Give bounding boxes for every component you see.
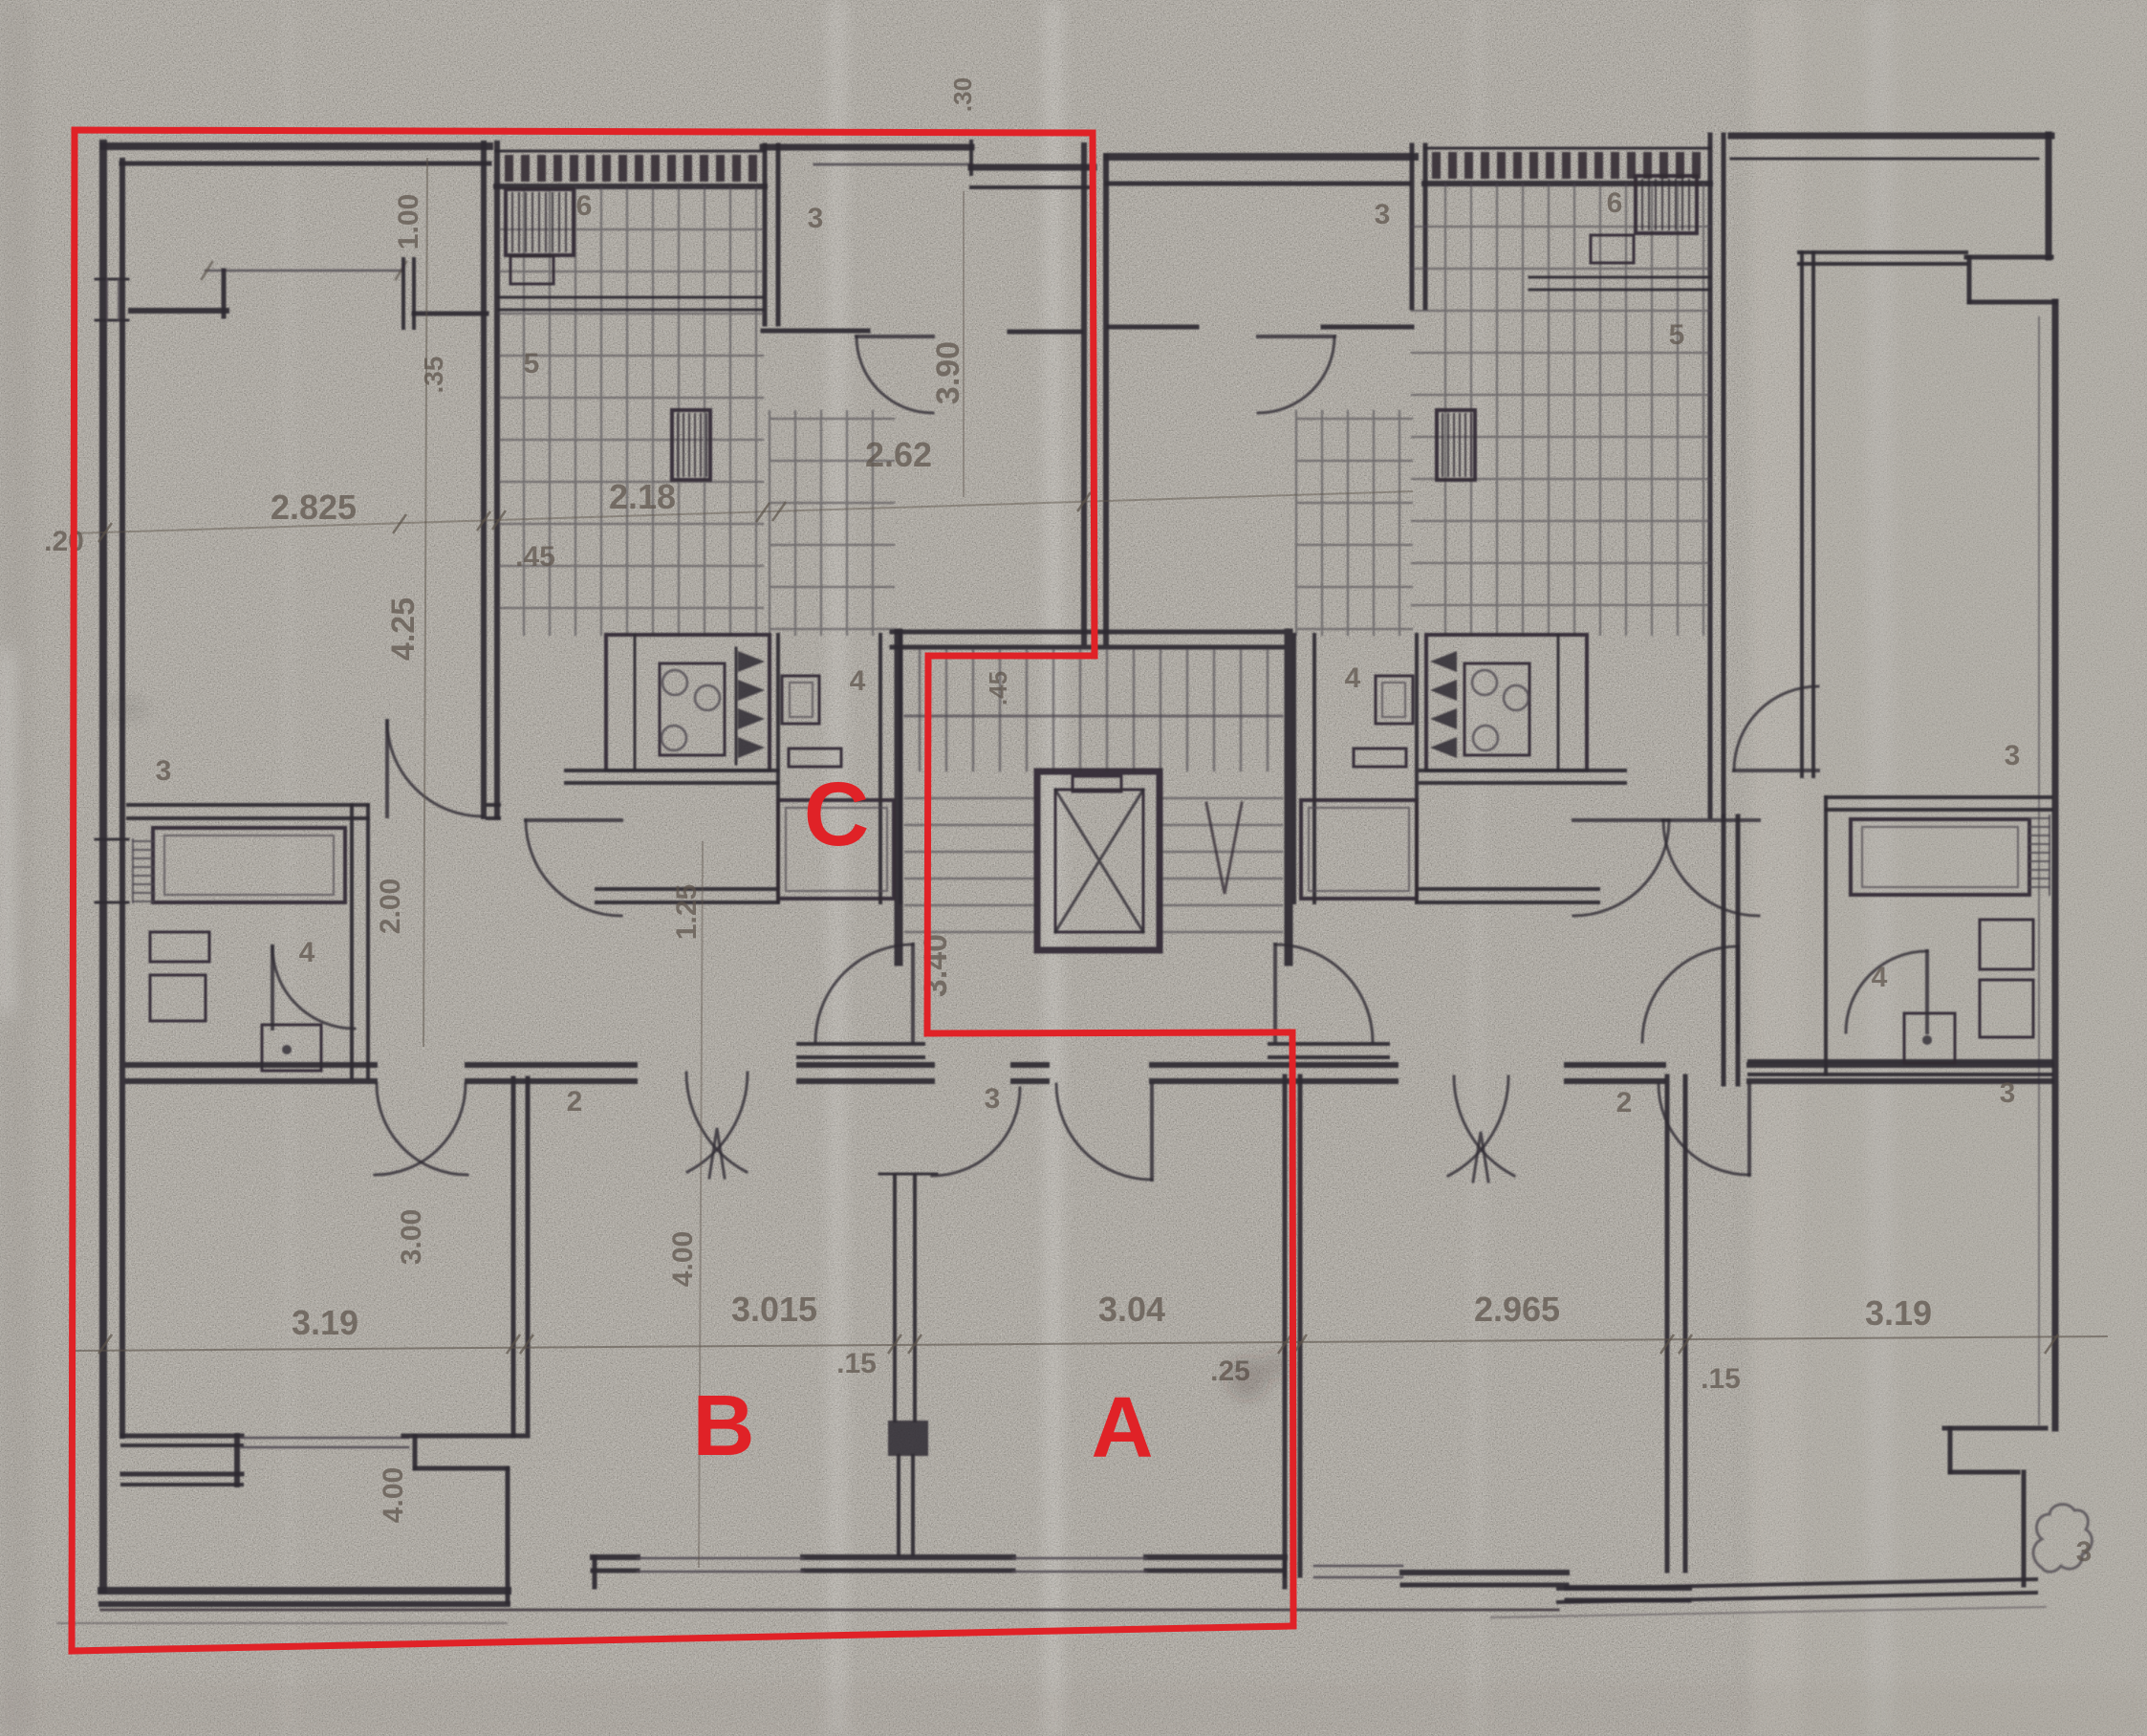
svg-text:2.18: 2.18 bbox=[609, 477, 676, 516]
svg-text:3: 3 bbox=[156, 755, 172, 787]
svg-text:3.04: 3.04 bbox=[1098, 1290, 1165, 1329]
svg-text:2.00: 2.00 bbox=[375, 879, 406, 934]
svg-text:3.90: 3.90 bbox=[930, 341, 966, 404]
svg-text:3: 3 bbox=[2000, 1077, 2016, 1109]
svg-text:.30: .30 bbox=[948, 77, 977, 112]
svg-text:2: 2 bbox=[1616, 1087, 1633, 1118]
svg-text:4: 4 bbox=[299, 937, 315, 968]
svg-text:A: A bbox=[1092, 1380, 1154, 1476]
svg-text:3.19: 3.19 bbox=[1865, 1293, 1932, 1333]
svg-text:4: 4 bbox=[850, 665, 866, 697]
svg-text:3: 3 bbox=[2005, 740, 2021, 771]
svg-text:.45: .45 bbox=[984, 671, 1012, 705]
svg-text:4.25: 4.25 bbox=[385, 597, 422, 661]
svg-text:3: 3 bbox=[2076, 1536, 2093, 1568]
svg-text:3.00: 3.00 bbox=[396, 1209, 427, 1265]
svg-text:3: 3 bbox=[1375, 199, 1391, 230]
svg-text:C: C bbox=[804, 764, 870, 865]
svg-text:.35: .35 bbox=[419, 357, 448, 394]
svg-text:3: 3 bbox=[985, 1083, 1001, 1115]
svg-text:2.825: 2.825 bbox=[271, 488, 357, 527]
svg-text:4: 4 bbox=[1345, 662, 1361, 694]
svg-text:.20: .20 bbox=[44, 526, 84, 557]
svg-text:6: 6 bbox=[1607, 187, 1623, 219]
svg-text:6: 6 bbox=[576, 190, 593, 222]
svg-text:3.19: 3.19 bbox=[292, 1303, 358, 1342]
svg-text:4.00: 4.00 bbox=[667, 1231, 699, 1287]
svg-text:B: B bbox=[693, 1378, 755, 1474]
svg-text:5: 5 bbox=[524, 348, 540, 380]
svg-text:.15: .15 bbox=[1701, 1363, 1741, 1395]
svg-text:1.00: 1.00 bbox=[393, 194, 424, 250]
svg-text:.15: .15 bbox=[836, 1348, 877, 1379]
svg-text:4: 4 bbox=[1872, 962, 1888, 993]
svg-text:5: 5 bbox=[1669, 319, 1685, 351]
svg-text:2: 2 bbox=[567, 1086, 583, 1118]
svg-text:1.25: 1.25 bbox=[671, 884, 703, 940]
svg-text:2.965: 2.965 bbox=[1474, 1290, 1560, 1329]
svg-text:4.00: 4.00 bbox=[378, 1467, 409, 1523]
svg-text:.45: .45 bbox=[515, 541, 555, 573]
svg-text:3.40: 3.40 bbox=[918, 934, 954, 997]
svg-text:3: 3 bbox=[808, 203, 824, 234]
svg-text:3.015: 3.015 bbox=[731, 1290, 817, 1329]
svg-text:2.62: 2.62 bbox=[865, 435, 932, 474]
